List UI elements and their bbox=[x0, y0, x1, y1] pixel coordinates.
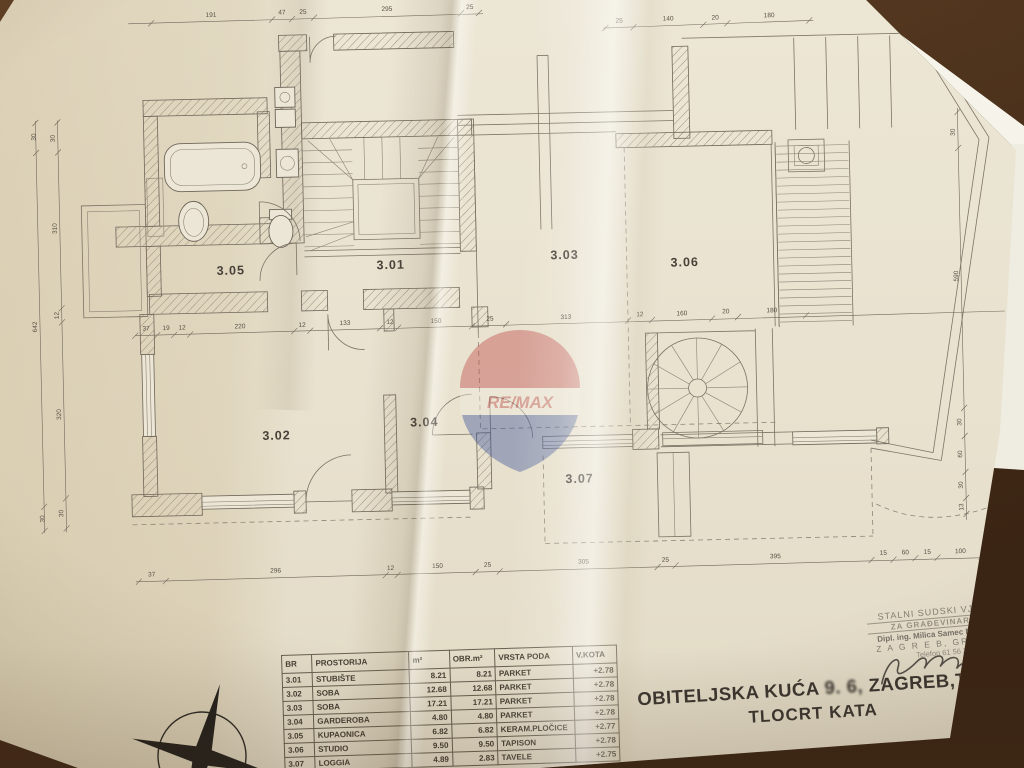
svg-text:320: 320 bbox=[56, 409, 63, 420]
house-number: 9. 6, bbox=[824, 675, 864, 698]
svg-text:220: 220 bbox=[235, 323, 246, 330]
paper-fold-highlight bbox=[499, 0, 692, 768]
toilet-icon bbox=[269, 215, 294, 248]
svg-text:60: 60 bbox=[902, 549, 910, 556]
svg-text:13: 13 bbox=[958, 503, 965, 511]
compass-star bbox=[130, 678, 280, 768]
svg-text:15: 15 bbox=[924, 549, 932, 556]
svg-text:395: 395 bbox=[770, 553, 781, 560]
svg-text:60: 60 bbox=[957, 450, 964, 458]
svg-text:100: 100 bbox=[955, 548, 966, 555]
column-header-br: BR bbox=[282, 655, 313, 674]
svg-text:310: 310 bbox=[52, 223, 59, 234]
terrace-decking bbox=[775, 138, 853, 327]
svg-text:20: 20 bbox=[712, 14, 720, 21]
svg-text:25: 25 bbox=[484, 562, 492, 569]
svg-text:37: 37 bbox=[142, 325, 150, 332]
compass-rose bbox=[130, 678, 280, 768]
svg-text:180: 180 bbox=[766, 307, 777, 314]
svg-text:47: 47 bbox=[278, 9, 286, 16]
blueprint-paper: 3.05 3.01 3.03 3.06 3.02 3.04 3.07 191 4… bbox=[0, 0, 1024, 768]
svg-text:37: 37 bbox=[148, 571, 156, 578]
room-label-302: 3.02 bbox=[262, 428, 291, 443]
svg-text:30: 30 bbox=[58, 509, 65, 517]
svg-text:12: 12 bbox=[54, 311, 61, 319]
svg-text:30: 30 bbox=[956, 418, 963, 426]
svg-text:30: 30 bbox=[50, 134, 57, 142]
washer-icon bbox=[276, 149, 299, 177]
svg-text:12: 12 bbox=[178, 325, 186, 332]
svg-text:30: 30 bbox=[31, 133, 38, 141]
photo-scene: 3.05 3.01 3.03 3.06 3.02 3.04 3.07 191 4… bbox=[0, 0, 1024, 768]
svg-text:15: 15 bbox=[880, 550, 888, 557]
room-label-305: 3.05 bbox=[216, 263, 245, 278]
svg-text:180: 180 bbox=[764, 12, 775, 19]
sink-icon bbox=[178, 201, 209, 242]
bathtub-icon bbox=[164, 142, 261, 192]
svg-text:30: 30 bbox=[950, 128, 957, 136]
svg-text:30: 30 bbox=[39, 515, 46, 523]
svg-text:642: 642 bbox=[32, 321, 39, 332]
svg-text:19: 19 bbox=[162, 325, 170, 332]
svg-text:296: 296 bbox=[270, 567, 281, 574]
svg-text:590: 590 bbox=[953, 270, 960, 281]
svg-text:12: 12 bbox=[298, 322, 306, 329]
svg-text:25: 25 bbox=[299, 9, 307, 16]
svg-text:295: 295 bbox=[381, 6, 392, 13]
svg-text:20: 20 bbox=[722, 308, 730, 315]
svg-text:191: 191 bbox=[206, 12, 217, 19]
svg-text:133: 133 bbox=[340, 320, 351, 327]
svg-text:30: 30 bbox=[958, 481, 965, 489]
